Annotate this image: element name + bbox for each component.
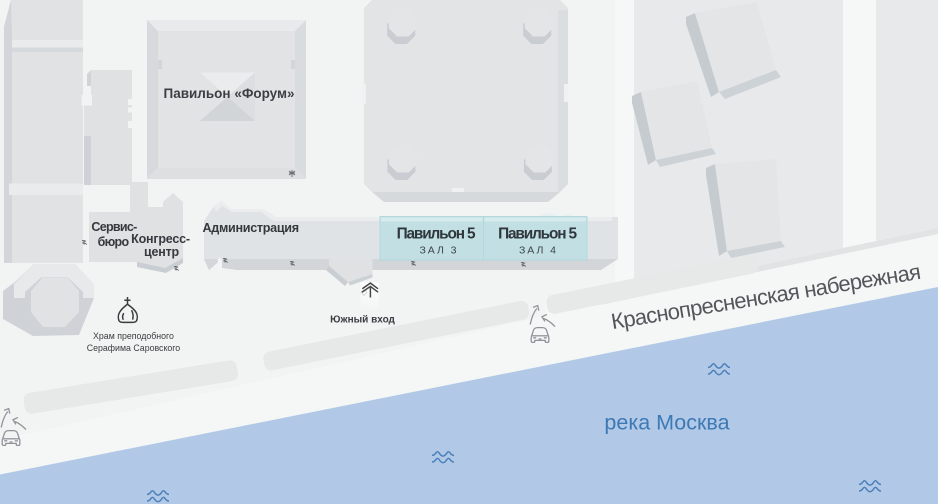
- svg-text:Администрация: Администрация: [203, 221, 299, 235]
- svg-text:река Москва: река Москва: [604, 411, 729, 435]
- svg-text:Павильон 5: Павильон 5: [498, 226, 577, 243]
- svg-text:Южный вход: Южный вход: [330, 315, 395, 326]
- svg-text:Конгресс-: Конгресс-: [131, 232, 190, 246]
- svg-text:центр: центр: [144, 245, 180, 259]
- svg-text:Павильон «Форум»: Павильон «Форум»: [163, 86, 294, 101]
- svg-text:бюро: бюро: [98, 235, 130, 249]
- svg-text:Храм преподобного: Храм преподобного: [93, 331, 174, 341]
- svg-text:ЗАЛ 4: ЗАЛ 4: [519, 245, 558, 257]
- svg-text:Серафима Саровского: Серафима Саровского: [87, 343, 181, 353]
- svg-text:Павильон 5: Павильон 5: [397, 226, 476, 243]
- svg-text:ЗАЛ 3: ЗАЛ 3: [420, 245, 459, 257]
